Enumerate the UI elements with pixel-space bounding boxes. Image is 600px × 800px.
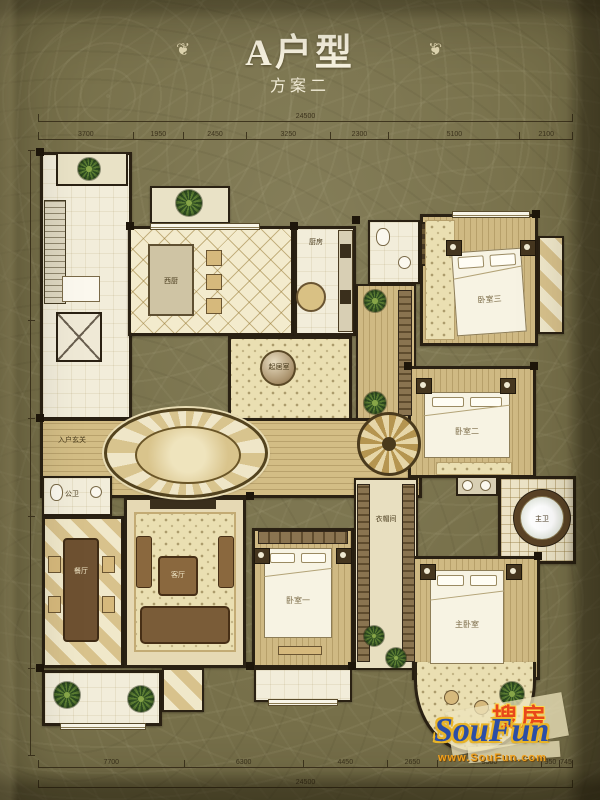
sink-icon (398, 256, 411, 269)
room-label-closet: 衣帽间 (376, 516, 397, 524)
soufun-en-logo: SouFun (434, 712, 549, 750)
balcony-left-deck (162, 668, 204, 712)
dim-label: 4450 (304, 759, 387, 766)
dim-label: 2450 (184, 131, 246, 138)
dim-label: 24500 (39, 779, 572, 786)
nightstand-icon (506, 564, 522, 580)
page-subtitle: 方案二 (0, 72, 600, 96)
room-label-family: 起居室 (269, 364, 290, 372)
stove-icon (340, 244, 351, 258)
dining-table (63, 538, 99, 642)
plant-icon (78, 158, 100, 180)
bay-window (538, 236, 564, 334)
plant-icon (128, 686, 154, 712)
stool (206, 274, 222, 290)
rug (436, 462, 512, 475)
bed-bedroom-3: 卧室三 (451, 248, 527, 337)
room-label-dining: 餐厅 (74, 568, 88, 576)
chair (102, 556, 115, 573)
room-label-guest-bath: 公卫 (65, 491, 79, 499)
wardrobe (258, 531, 348, 544)
dim-label: 7700 (39, 759, 184, 766)
dim-label: 6300 (185, 759, 303, 766)
chair (48, 596, 61, 613)
side-sofa (136, 536, 152, 588)
window-icon (60, 723, 146, 730)
dim-label: 2300 (331, 131, 389, 138)
window-icon (150, 223, 260, 230)
bathtub-icon: 主卫 (514, 490, 570, 546)
room-bath-top (368, 220, 420, 284)
nightstand-icon (336, 548, 352, 564)
nightstand-icon (520, 240, 536, 256)
window-icon (268, 699, 338, 706)
stool (206, 298, 222, 314)
room-label-bedroom-3: 卧室三 (455, 291, 524, 307)
room-label-master-bedroom: 主卧室 (431, 619, 503, 630)
room-label-living: 客厅 (171, 572, 185, 580)
bench (278, 646, 322, 655)
nightstand-icon (500, 378, 516, 394)
rug (425, 220, 455, 340)
closet-shelves (402, 484, 415, 662)
floorplan-page: ❦ A户型 ❦ 方案二 24500 3700 1950 2450 3250 23… (0, 0, 600, 800)
plant-icon (364, 290, 386, 312)
round-medallion (357, 412, 421, 476)
bed-master: 主卧室 (430, 570, 504, 664)
room-label-master-bath: 主卫 (514, 514, 570, 524)
nightstand-icon (446, 240, 462, 256)
floral-ornament-icon: ❦ (428, 40, 442, 60)
bed-bedroom-2: 卧室二 (424, 392, 510, 458)
window-icon (452, 211, 530, 218)
soufun-url: www.SouFun.com (438, 752, 547, 764)
plant-icon (176, 190, 202, 216)
page-title: A户型 (0, 22, 600, 76)
dim-label: 2100 (520, 131, 572, 138)
tv-cabinet (150, 499, 216, 509)
shelving (398, 290, 412, 416)
sink-icon (480, 480, 491, 491)
plant-icon (386, 648, 406, 668)
toilet-icon (62, 276, 100, 302)
side-sofa (218, 536, 234, 588)
dim-label: 3250 (247, 131, 329, 138)
dimension-left-line (30, 150, 37, 756)
dim-label: 24500 (39, 113, 572, 120)
room-label-bedroom-1: 卧室一 (265, 595, 331, 606)
room-label-kitchen: 厨房 (309, 239, 323, 247)
stool (206, 250, 222, 266)
breakfast-table (296, 282, 326, 312)
dimension-top-overall: 24500 (38, 114, 573, 122)
elevator-icon (56, 312, 102, 362)
dimension-top-segments: 3700 1950 2450 3250 2300 5100 2100 (38, 132, 573, 140)
sink-icon (340, 290, 351, 304)
room-label-bedroom-2: 卧室二 (425, 426, 509, 437)
dim-label: 5100 (389, 131, 519, 138)
nightstand-icon (420, 564, 436, 580)
plant-icon (364, 626, 384, 646)
dim-label: 1950 (134, 131, 183, 138)
sink-icon (462, 480, 473, 491)
plant-icon (54, 682, 80, 708)
dimension-bottom-overall: 24500 (38, 780, 573, 788)
nightstand-icon (416, 378, 432, 394)
chair (48, 556, 61, 573)
balcony-center (254, 668, 352, 702)
dim-label: 3700 (39, 131, 133, 138)
room-label-entry-hall: 入户玄关 (58, 437, 86, 445)
toilet-icon (376, 228, 390, 246)
chair (102, 596, 115, 613)
plant-icon (364, 392, 386, 414)
toilet-icon (50, 484, 63, 501)
oval-hall-medallion (104, 408, 268, 498)
bed-bedroom-1: 卧室一 (264, 548, 332, 638)
sofa (140, 606, 230, 644)
nightstand-icon (254, 548, 270, 564)
room-label-west-kitchen: 西厨 (164, 278, 178, 286)
sink-icon (90, 486, 102, 498)
soufun-watermark: 搜房 SouFun www.SouFun.com (420, 692, 590, 772)
